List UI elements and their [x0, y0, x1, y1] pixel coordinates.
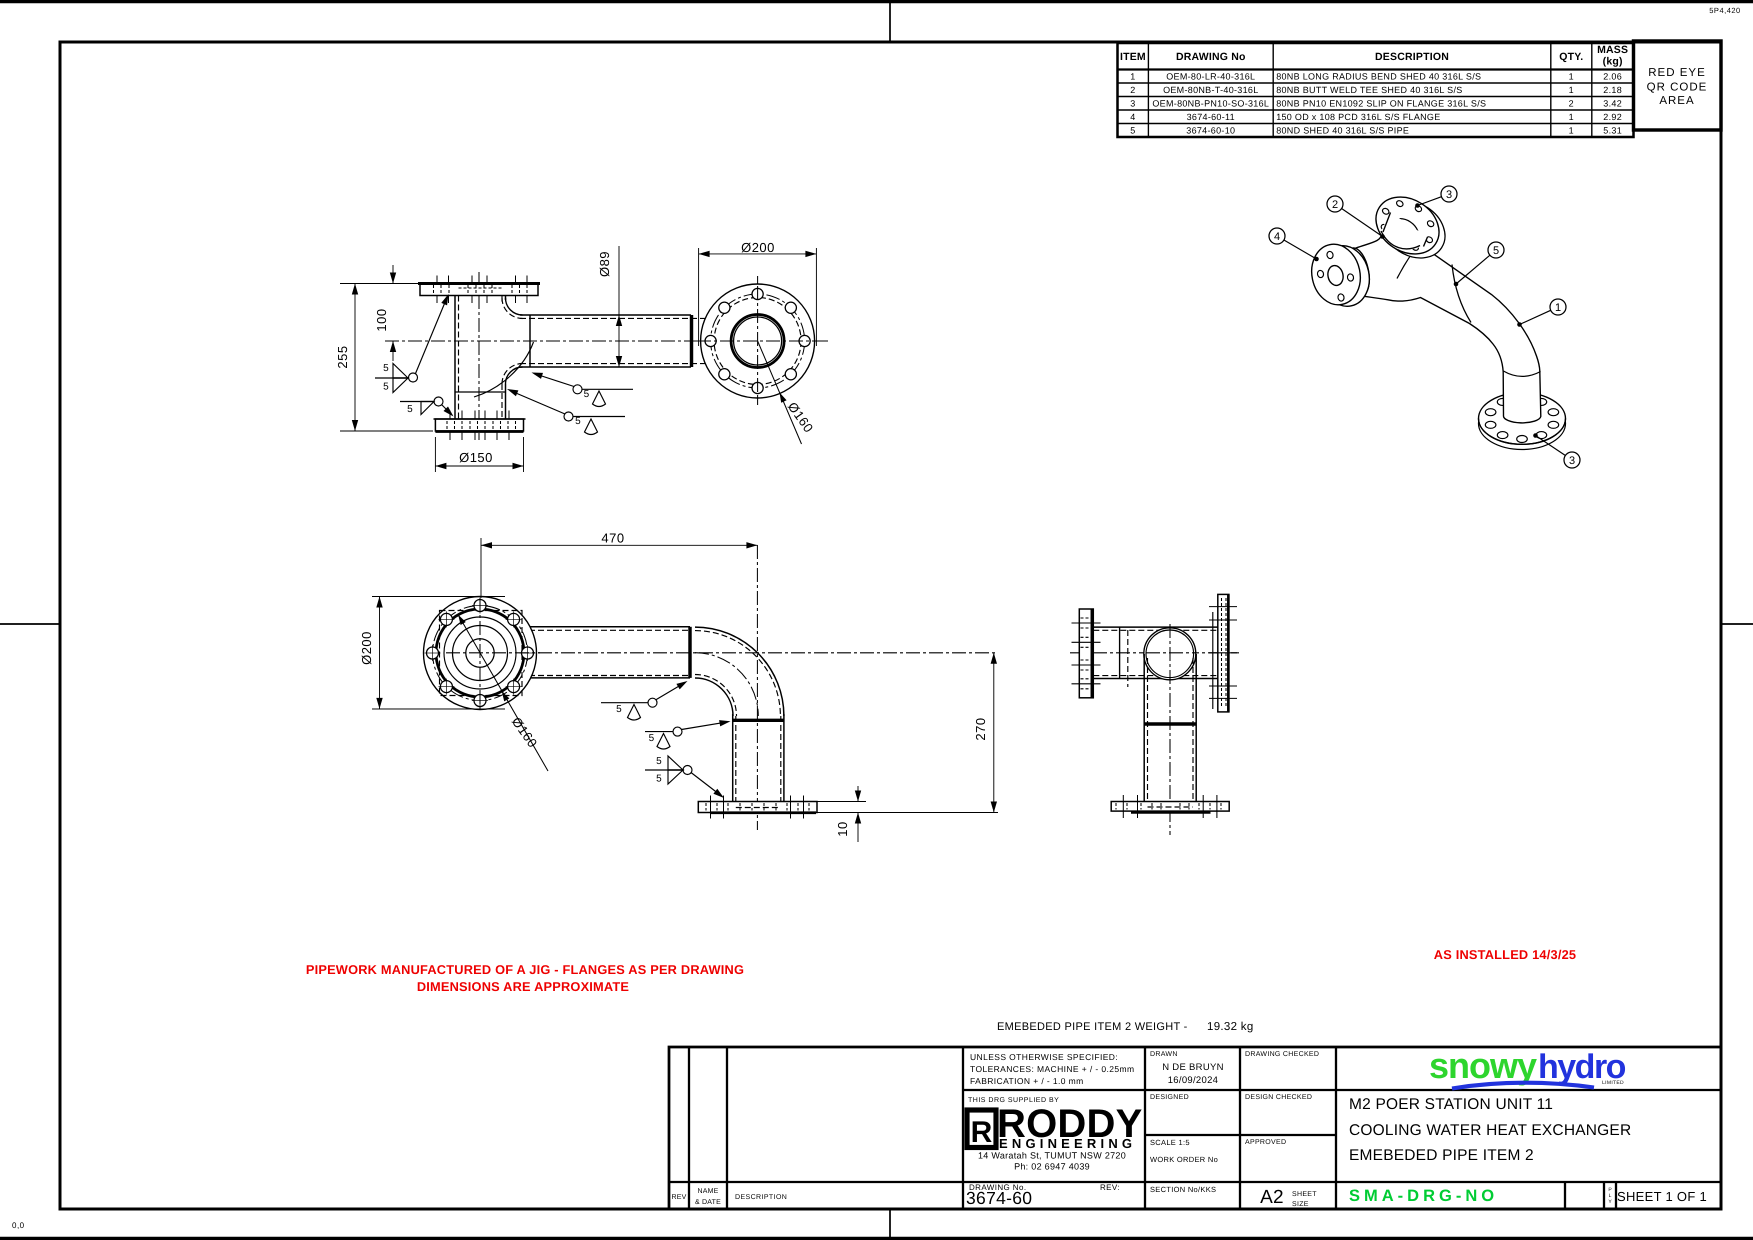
svg-text:OEM-80-LR-40-316L: OEM-80-LR-40-316L [1166, 71, 1255, 81]
svg-text:1: 1 [1569, 71, 1574, 81]
svg-text:APPROVED: APPROVED [1245, 1139, 1286, 1146]
svg-text:16/09/2024: 16/09/2024 [1168, 1075, 1219, 1086]
svg-text:2: 2 [1569, 98, 1574, 108]
svg-text:1: 1 [1555, 302, 1561, 314]
svg-text:1: 1 [1569, 125, 1574, 135]
svg-text:5: 5 [656, 774, 662, 785]
svg-text:4: 4 [1274, 231, 1280, 243]
svg-text:ENGINEERING: ENGINEERING [999, 1136, 1136, 1151]
svg-text:SCALE 1:5: SCALE 1:5 [1150, 1138, 1190, 1147]
svg-text:EMEBEDED PIPE ITEM 2 WEIGHT -: EMEBEDED PIPE ITEM 2 WEIGHT - [997, 1021, 1188, 1033]
svg-text:2: 2 [1332, 199, 1338, 211]
svg-text:DESIGN CHECKED: DESIGN CHECKED [1245, 1094, 1312, 1101]
svg-text:80ND SHED 40 316L S/S PIPE: 80ND SHED 40 316L S/S PIPE [1276, 125, 1409, 135]
svg-text:2: 2 [1130, 85, 1135, 95]
svg-text:Ø89: Ø89 [597, 251, 612, 277]
svg-text:REV:: REV: [1100, 1183, 1120, 1192]
svg-text:3674-60: 3674-60 [966, 1188, 1032, 1208]
svg-text:5: 5 [575, 416, 581, 427]
svg-text:& DATE: & DATE [695, 1199, 721, 1206]
svg-text:5P4,420: 5P4,420 [1709, 6, 1740, 15]
svg-text:LIMITED: LIMITED [1602, 1080, 1624, 1086]
svg-text:A2: A2 [1260, 1187, 1284, 1208]
svg-text:100: 100 [374, 308, 389, 331]
svg-text:MASS: MASS [1597, 44, 1628, 56]
svg-text:5: 5 [383, 363, 389, 374]
svg-text:AREA: AREA [1659, 95, 1694, 107]
svg-text:Ø150: Ø150 [459, 450, 493, 465]
svg-text:DIMENSIONS ARE APPROXIMATE: DIMENSIONS ARE APPROXIMATE [417, 979, 630, 994]
svg-text:2.06: 2.06 [1603, 71, 1622, 81]
svg-text:270: 270 [973, 717, 988, 740]
svg-text:19.32 kg: 19.32 kg [1207, 1021, 1254, 1033]
svg-text:AS INSTALLED 14/3/25: AS INSTALLED 14/3/25 [1434, 947, 1576, 962]
svg-text:Ø200: Ø200 [359, 631, 374, 665]
svg-text:80NB PN10 EN1092 SLIP ON FLANG: 80NB PN10 EN1092 SLIP ON FLANGE 316L S/S [1276, 98, 1486, 108]
svg-text:QTY.: QTY. [1559, 51, 1583, 63]
svg-text:R: R [971, 1116, 993, 1149]
svg-text:3: 3 [1130, 98, 1135, 108]
svg-text:5: 5 [584, 389, 590, 400]
svg-text:PIPEWORK MANUFACTURED OF A JIG: PIPEWORK MANUFACTURED OF A JIG - FLANGES… [306, 962, 744, 977]
svg-text:3.42: 3.42 [1603, 98, 1622, 108]
svg-text:3: 3 [1569, 455, 1575, 467]
svg-text:5: 5 [383, 382, 389, 393]
svg-text:M2 POER STATION UNIT 11: M2 POER STATION UNIT 11 [1349, 1096, 1553, 1113]
svg-text:SHEET: SHEET [1292, 1191, 1317, 1198]
svg-text:5: 5 [649, 733, 655, 744]
svg-text:COOLING WATER HEAT EXCHANGER: COOLING WATER HEAT EXCHANGER [1349, 1122, 1631, 1139]
svg-text:UNLESS OTHERWISE SPECIFIED:: UNLESS OTHERWISE SPECIFIED: [970, 1052, 1118, 1062]
svg-text:SIZE: SIZE [1292, 1201, 1309, 1208]
svg-text:0,0: 0,0 [12, 1221, 25, 1230]
svg-text:RED EYE: RED EYE [1648, 67, 1706, 79]
svg-text:3674-60-10: 3674-60-10 [1186, 125, 1235, 135]
svg-text:1: 1 [1569, 85, 1574, 95]
svg-text:4: 4 [1130, 112, 1135, 122]
svg-text:FABRICATION + / - 1.0 mm: FABRICATION + / - 1.0 mm [970, 1076, 1084, 1086]
svg-text:OEM-80NB-PN10-SO-316L: OEM-80NB-PN10-SO-316L [1152, 98, 1269, 108]
svg-text:QR CODE: QR CODE [1647, 82, 1708, 94]
svg-text:SHEET 1 OF 1: SHEET 1 OF 1 [1617, 1189, 1707, 1204]
svg-text:5: 5 [616, 704, 622, 715]
svg-text:DRAWN: DRAWN [1150, 1051, 1178, 1058]
svg-text:REV: REV [672, 1194, 687, 1201]
svg-text:OEM-80NB-T-40-316L: OEM-80NB-T-40-316L [1163, 85, 1258, 95]
svg-text:DESCRIPTION: DESCRIPTION [1375, 51, 1449, 63]
svg-text:Ø200: Ø200 [741, 240, 775, 255]
svg-text:5: 5 [1493, 245, 1499, 257]
svg-text:Ph: 02 6947 4039: Ph: 02 6947 4039 [1014, 1162, 1090, 1172]
svg-text:1: 1 [1130, 71, 1135, 81]
svg-text:80NB LONG RADIUS BEND SHED 40: 80NB LONG RADIUS BEND SHED 40 316L S/S [1276, 71, 1481, 81]
svg-text:DESIGNED: DESIGNED [1150, 1094, 1189, 1101]
svg-text:ITEM: ITEM [1120, 51, 1146, 63]
svg-text:5: 5 [1130, 125, 1135, 135]
svg-text:150 OD x 108 PCD 316L S/S FLA: 150 OD x 108 PCD 316L S/S FLANGE [1276, 112, 1440, 122]
svg-text:470: 470 [601, 531, 624, 546]
svg-text:14 Waratah St, TUMUT NSW 2720: 14 Waratah St, TUMUT NSW 2720 [978, 1151, 1126, 1161]
svg-text:SMA-DRG-NO: SMA-DRG-NO [1349, 1187, 1498, 1205]
svg-text:255: 255 [335, 345, 350, 368]
svg-text:3: 3 [1446, 189, 1452, 201]
svg-text:DESCRIPTION: DESCRIPTION [735, 1194, 787, 1201]
svg-text:N DE BRUYN: N DE BRUYN [1162, 1062, 1224, 1073]
svg-text:DRAWING CHECKED: DRAWING CHECKED [1245, 1051, 1319, 1058]
svg-text:2.18: 2.18 [1603, 85, 1622, 95]
svg-text:80NB BUTT WELD TEE SHED 40 31: 80NB BUTT WELD TEE SHED 40 316L S/S [1276, 85, 1462, 95]
svg-text:TOLERANCES: MACHINE + / - 0.25: TOLERANCES: MACHINE + / - 0.25mm [970, 1064, 1135, 1074]
svg-text:SECTION No/KKS: SECTION No/KKS [1150, 1185, 1216, 1194]
svg-text:1: 1 [1569, 112, 1574, 122]
svg-text:EMEBEDED PIPE ITEM 2: EMEBEDED PIPE ITEM 2 [1349, 1147, 1534, 1164]
svg-text:2.92: 2.92 [1603, 112, 1622, 122]
svg-text:snowy: snowy [1429, 1045, 1537, 1086]
svg-text:10: 10 [835, 821, 850, 836]
svg-text:5.31: 5.31 [1603, 125, 1622, 135]
svg-text:NAME: NAME [697, 1188, 718, 1195]
svg-text:(kg): (kg) [1603, 56, 1623, 68]
svg-text:3674-60-11: 3674-60-11 [1187, 112, 1235, 122]
svg-text:5: 5 [656, 756, 662, 767]
svg-text:WORK ORDER No: WORK ORDER No [1150, 1155, 1218, 1164]
svg-text:DRAWING No: DRAWING No [1176, 51, 1246, 63]
svg-text:5: 5 [407, 404, 413, 415]
